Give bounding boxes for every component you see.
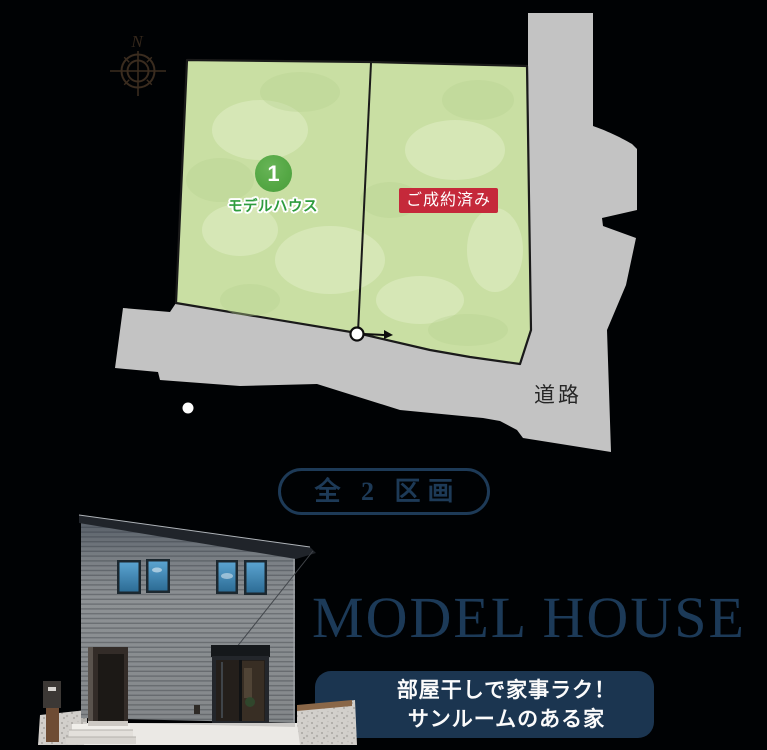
- window-3: [216, 560, 238, 594]
- model-house-photo: [20, 500, 360, 750]
- site-plan-map: N: [0, 0, 767, 470]
- window-2: [146, 559, 170, 593]
- model-house-heading: MODEL HOUSE: [312, 589, 746, 647]
- lot-2-sold-badge: ご成約済み: [399, 188, 498, 213]
- lot-1-number: 1: [267, 161, 279, 187]
- feature-banner-line1: 部屋干しで家事ラク！: [367, 676, 646, 705]
- survey-dot-icon: [183, 403, 194, 414]
- window-4: [244, 560, 267, 595]
- page: N 1 モデルハウス ご成約済み 道路 全 2 区画 部屋干しで家事ラク！ サン…: [0, 0, 767, 750]
- house-building: [79, 515, 316, 727]
- road-label: 道路: [534, 379, 582, 409]
- sliding-glass-door: [211, 645, 270, 723]
- entrance-steps: [66, 724, 136, 744]
- wall-spotlight: [194, 705, 200, 714]
- lot-1-marker: 1: [255, 155, 292, 192]
- feature-banner: 部屋干しで家事ラク！ サンルームのある家: [315, 671, 654, 738]
- survey-point-icon: [351, 328, 364, 341]
- survey-arrow-line: [364, 334, 384, 335]
- lot-1-label: モデルハウス: [218, 195, 328, 216]
- front-door: [98, 654, 124, 723]
- entrance: [88, 647, 128, 726]
- feature-banner-line2: サンルームのある家: [367, 705, 646, 734]
- compass-north-label: N: [130, 32, 144, 51]
- compass-icon: N: [110, 32, 166, 96]
- window-1: [117, 560, 141, 594]
